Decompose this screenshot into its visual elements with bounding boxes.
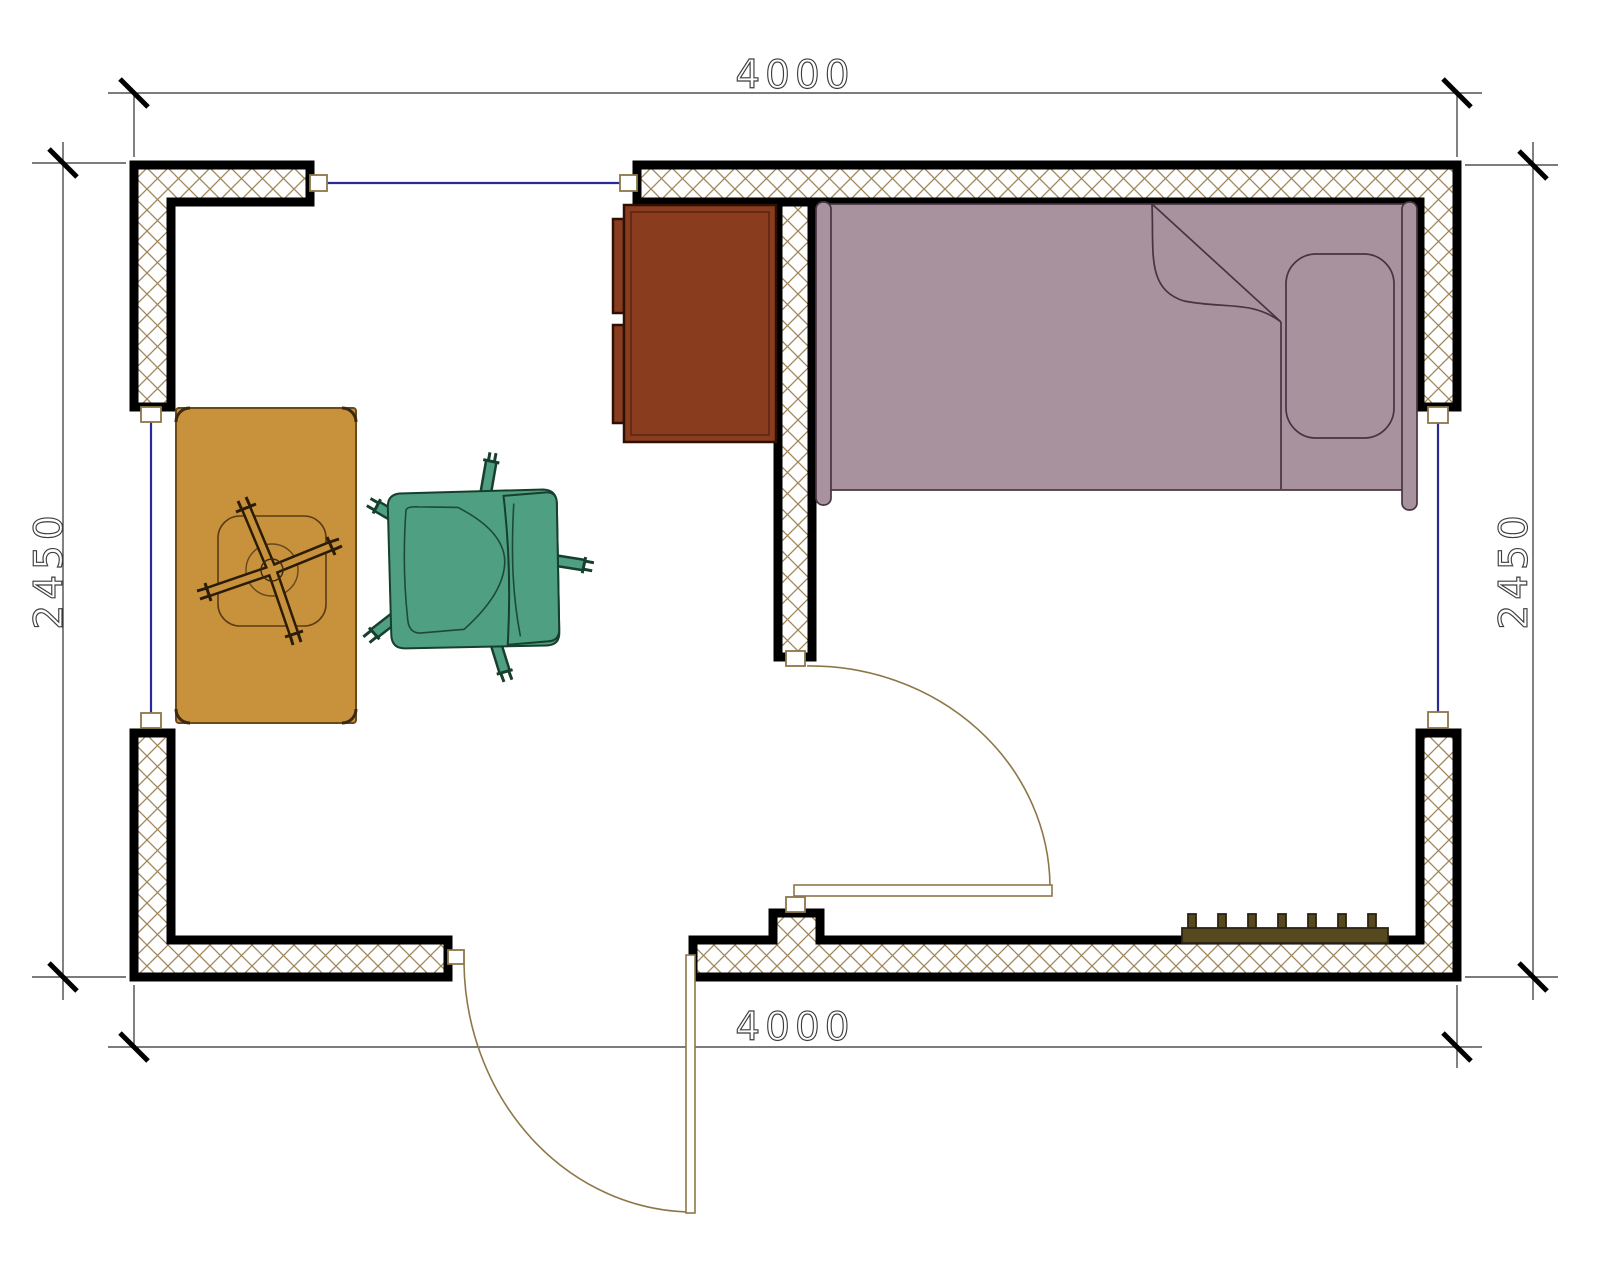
- bed: [816, 202, 1417, 510]
- floor-plan-svg: 4000 2450 2450 4000: [0, 0, 1600, 1280]
- dimension-bottom: 4000: [108, 985, 1482, 1068]
- window-frame-box: [1428, 712, 1448, 728]
- window-frame-box: [1428, 407, 1448, 423]
- door-frame-box: [448, 950, 464, 964]
- office-chair: [357, 449, 598, 687]
- door-frame-box: [786, 651, 805, 666]
- radiator-fin: [1338, 914, 1346, 928]
- dimension-label-bottom: 4000: [735, 1005, 854, 1050]
- wall-partition: [778, 202, 812, 657]
- window-frame-box: [310, 175, 327, 191]
- dimension-label-right: 2450: [1492, 510, 1537, 629]
- door-hinge-box: [786, 897, 805, 912]
- window-left: [141, 407, 161, 728]
- bed-headboard: [816, 202, 831, 505]
- window-right: [1428, 407, 1448, 728]
- door-swing-arc: [464, 963, 691, 1212]
- door-leaf: [794, 885, 1052, 896]
- radiator-body: [1182, 928, 1388, 943]
- chair-backrest: [502, 492, 561, 645]
- cabinet-handle: [613, 325, 624, 423]
- radiator-fin: [1308, 914, 1316, 928]
- dimension-right: 2450: [1465, 142, 1558, 1000]
- cabinet: [613, 205, 776, 442]
- wall-top-left: [134, 165, 310, 407]
- radiator-fin: [1278, 914, 1286, 928]
- dimension-label-top: 4000: [735, 53, 854, 98]
- door-swing-arc: [807, 666, 1050, 886]
- bed-pillow: [1286, 254, 1394, 438]
- door-interior: [786, 651, 1052, 912]
- window-frame-box: [141, 713, 161, 728]
- table: [176, 408, 356, 723]
- wall-bottom-left: [134, 733, 448, 977]
- dimension-label-left: 2450: [27, 510, 72, 629]
- window-top: [310, 175, 637, 191]
- door-exterior: [448, 950, 695, 1213]
- window-frame-box: [620, 175, 637, 191]
- dimension-top: 4000: [108, 53, 1482, 157]
- floor-plan-canvas: 4000 2450 2450 4000: [0, 0, 1600, 1280]
- dimension-left: 2450: [27, 142, 126, 1000]
- cabinet-top: [624, 205, 776, 442]
- radiator-fin: [1248, 914, 1256, 928]
- window-frame-box: [141, 407, 161, 422]
- radiator-fin: [1188, 914, 1196, 928]
- door-leaf: [686, 955, 695, 1213]
- bed-footboard: [1402, 202, 1417, 510]
- radiator: [1182, 914, 1388, 943]
- radiator-fin: [1218, 914, 1226, 928]
- cabinet-handle: [613, 219, 624, 313]
- radiator-fin: [1368, 914, 1376, 928]
